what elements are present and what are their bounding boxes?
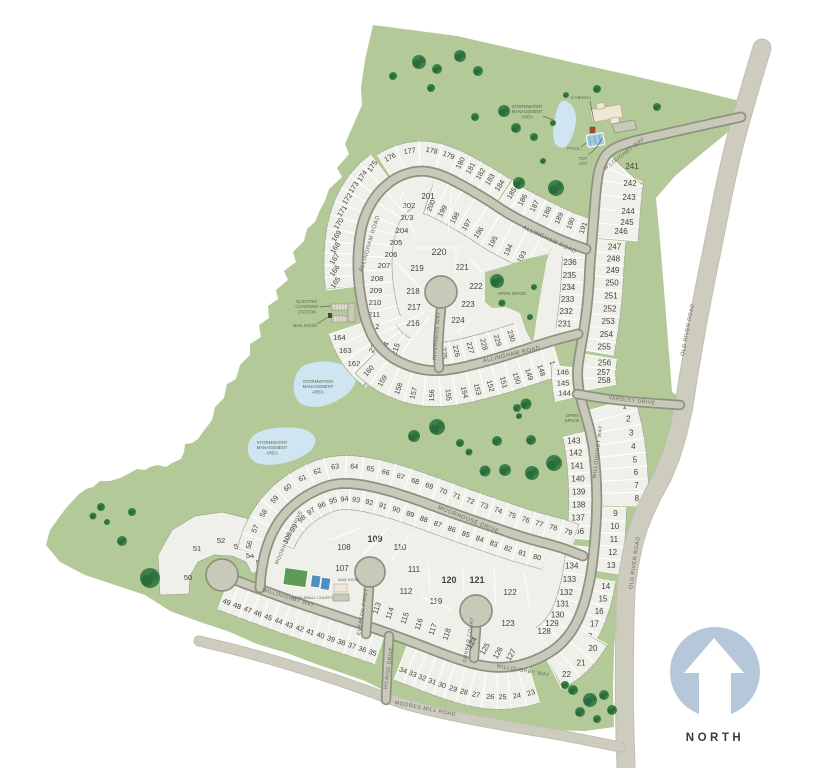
svg-text:139: 139 (572, 488, 586, 497)
svg-text:STATION: STATION (298, 309, 316, 314)
svg-text:50: 50 (184, 573, 192, 582)
svg-text:AREA: AREA (266, 450, 278, 455)
svg-text:162: 162 (348, 359, 361, 368)
svg-text:22: 22 (562, 670, 571, 679)
svg-text:137: 137 (572, 514, 586, 523)
svg-text:93: 93 (351, 495, 360, 505)
svg-text:NORTH: NORTH (686, 732, 744, 744)
svg-text:132: 132 (560, 588, 574, 597)
svg-text:94: 94 (340, 494, 349, 504)
svg-text:120: 120 (441, 575, 456, 585)
svg-text:107: 107 (335, 564, 349, 573)
svg-text:219: 219 (410, 264, 424, 273)
svg-text:122: 122 (503, 588, 517, 597)
svg-text:LOT: LOT (579, 161, 588, 166)
svg-text:13: 13 (607, 561, 616, 570)
svg-text:248: 248 (607, 254, 621, 263)
svg-text:51: 51 (193, 544, 201, 553)
svg-text:146: 146 (556, 367, 569, 376)
svg-text:235: 235 (563, 271, 577, 280)
svg-text:108: 108 (337, 543, 351, 552)
svg-text:26: 26 (486, 692, 494, 701)
svg-text:21: 21 (577, 658, 586, 667)
svg-text:4: 4 (631, 442, 636, 451)
svg-text:246: 246 (614, 227, 628, 236)
svg-text:242: 242 (623, 179, 637, 188)
svg-text:128: 128 (538, 627, 552, 636)
svg-text:16: 16 (595, 607, 604, 616)
svg-text:232: 232 (560, 307, 574, 316)
svg-text:133: 133 (563, 575, 577, 584)
svg-text:234: 234 (562, 283, 576, 292)
svg-text:201: 201 (421, 192, 435, 201)
svg-text:AREA: AREA (312, 389, 324, 394)
svg-text:254: 254 (600, 330, 614, 339)
svg-text:217: 217 (407, 303, 421, 312)
svg-text:5: 5 (633, 455, 638, 464)
svg-text:AREA: AREA (521, 114, 533, 119)
svg-text:164: 164 (333, 333, 346, 342)
svg-text:205: 205 (390, 238, 403, 247)
svg-text:141: 141 (571, 461, 585, 470)
svg-text:249: 249 (606, 266, 620, 275)
svg-text:111: 111 (408, 565, 421, 574)
svg-text:221: 221 (455, 263, 469, 272)
svg-text:156: 156 (427, 389, 436, 401)
svg-text:210: 210 (369, 298, 382, 307)
svg-text:245: 245 (620, 218, 634, 227)
svg-text:231: 231 (558, 319, 572, 328)
svg-text:163: 163 (339, 346, 352, 355)
svg-text:253: 253 (602, 317, 616, 326)
svg-text:250: 250 (605, 279, 619, 288)
svg-text:MAIL KIOSK: MAIL KIOSK (293, 323, 317, 328)
svg-text:243: 243 (622, 193, 636, 202)
svg-text:52: 52 (217, 536, 225, 545)
svg-text:123: 123 (501, 619, 515, 628)
svg-text:207: 207 (378, 261, 391, 270)
svg-text:209: 209 (370, 286, 383, 295)
svg-text:140: 140 (571, 474, 585, 483)
svg-text:131: 131 (556, 600, 570, 609)
svg-text:247: 247 (608, 242, 622, 251)
svg-text:244: 244 (621, 207, 635, 216)
svg-text:143: 143 (567, 437, 581, 446)
svg-text:224: 224 (451, 316, 465, 325)
svg-text:24: 24 (512, 690, 521, 700)
svg-text:POOL: POOL (567, 146, 581, 151)
svg-text:206: 206 (385, 250, 398, 259)
svg-text:177: 177 (403, 145, 416, 156)
svg-text:138: 138 (572, 501, 586, 510)
svg-text:222: 222 (469, 282, 483, 291)
svg-text:134: 134 (565, 562, 579, 571)
svg-text:14: 14 (601, 582, 610, 591)
svg-text:142: 142 (569, 449, 583, 458)
svg-text:236: 236 (563, 258, 577, 267)
svg-text:255: 255 (598, 343, 612, 352)
svg-text:121: 121 (469, 575, 484, 585)
svg-text:11: 11 (610, 535, 619, 544)
svg-text:CABANA: CABANA (571, 95, 592, 100)
svg-text:OPEN SPACE: OPEN SPACE (498, 291, 526, 296)
svg-text:256: 256 (598, 359, 612, 368)
svg-text:17: 17 (590, 620, 599, 629)
svg-text:SPACE: SPACE (565, 418, 580, 423)
svg-text:208: 208 (371, 274, 384, 283)
svg-text:9: 9 (613, 509, 618, 518)
svg-text:65: 65 (366, 463, 376, 473)
svg-text:25: 25 (499, 692, 507, 701)
svg-text:112: 112 (400, 587, 413, 596)
svg-text:64: 64 (350, 461, 359, 471)
svg-text:258: 258 (597, 376, 611, 385)
svg-text:20: 20 (589, 644, 598, 653)
svg-text:63: 63 (330, 461, 339, 471)
svg-text:233: 233 (561, 295, 575, 304)
svg-text:145: 145 (557, 378, 570, 387)
svg-text:155: 155 (444, 388, 454, 401)
svg-text:6: 6 (634, 468, 639, 477)
svg-text:10: 10 (610, 522, 619, 531)
svg-text:3: 3 (629, 428, 634, 437)
svg-text:2: 2 (626, 415, 631, 424)
svg-text:12: 12 (608, 548, 617, 557)
svg-text:218: 218 (406, 287, 420, 296)
svg-text:251: 251 (604, 292, 618, 301)
svg-text:144: 144 (558, 389, 571, 398)
svg-text:223: 223 (461, 300, 475, 309)
svg-text:27: 27 (471, 689, 481, 699)
svg-text:MAIL KIOSK: MAIL KIOSK (338, 578, 360, 582)
svg-text:8: 8 (635, 494, 640, 503)
svg-text:241: 241 (625, 162, 639, 171)
svg-text:7: 7 (634, 481, 639, 490)
svg-text:15: 15 (598, 594, 607, 603)
svg-text:204: 204 (396, 226, 409, 235)
svg-text:252: 252 (603, 304, 617, 313)
svg-text:110: 110 (394, 543, 407, 552)
